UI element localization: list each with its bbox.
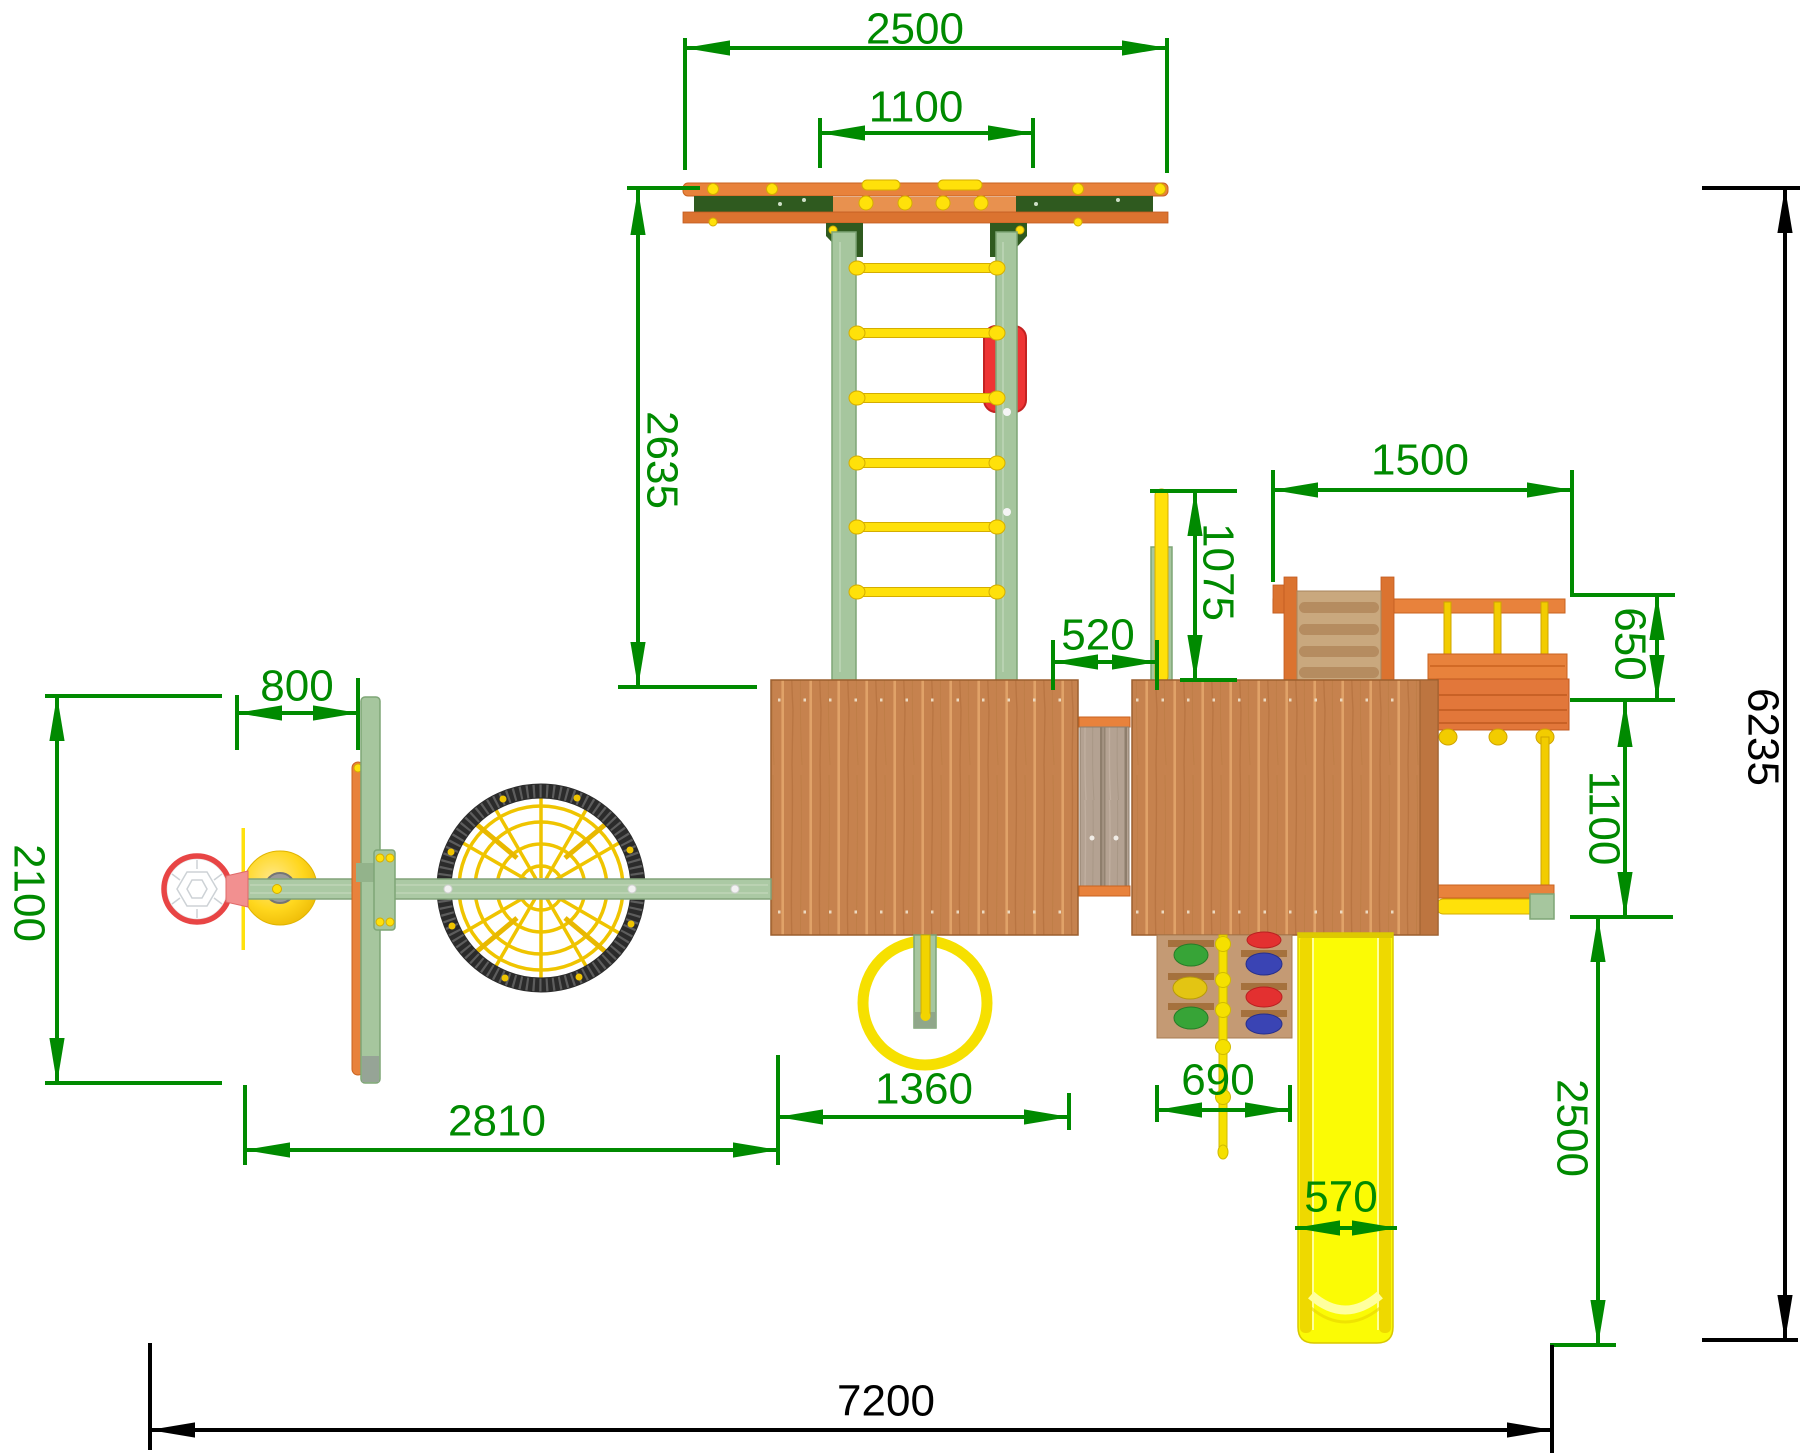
bridge-cap-bottom bbox=[1079, 886, 1130, 896]
top-gym-frame bbox=[683, 180, 1168, 257]
basketball-hoop bbox=[164, 856, 230, 922]
ramp-post-left bbox=[1284, 577, 1297, 683]
screw bbox=[802, 198, 806, 202]
bolt-cap bbox=[386, 918, 394, 926]
dimension-hoop-offset: 800 bbox=[237, 661, 358, 750]
swing-rope bbox=[921, 935, 930, 1015]
bolt-cap bbox=[1074, 218, 1082, 226]
a-frame-leg bbox=[352, 697, 395, 1083]
bolt-cap bbox=[376, 918, 384, 926]
dim-label-ring-bay: 1360 bbox=[875, 1064, 973, 1113]
dimension-side-module-width: 1500 bbox=[1273, 435, 1572, 594]
bolt-cap bbox=[1073, 184, 1084, 195]
dimension-ladder-length: 2635 bbox=[618, 188, 757, 687]
rope-tip bbox=[921, 1011, 931, 1021]
bolt-cap bbox=[708, 184, 719, 195]
screw bbox=[1090, 836, 1095, 841]
rung-knob bbox=[859, 196, 873, 210]
trapeze-bar bbox=[1436, 899, 1539, 914]
climbing-hold-blue bbox=[1246, 953, 1282, 975]
rope-knot bbox=[1489, 729, 1507, 745]
bolt-cap bbox=[709, 218, 717, 226]
dimension-rope-ladder-depth: 650 bbox=[1570, 595, 1675, 700]
climbing-hold-green bbox=[1174, 1007, 1208, 1029]
trapeze-frame bbox=[1436, 737, 1554, 919]
bridge-cap-top bbox=[1079, 717, 1130, 727]
bolt bbox=[628, 885, 636, 893]
trapeze-rope bbox=[1541, 737, 1549, 889]
ramp-roller bbox=[1299, 646, 1379, 657]
rope-ladder bbox=[1428, 602, 1569, 745]
bolt-cap bbox=[767, 184, 778, 195]
slide-rail-right bbox=[1379, 935, 1391, 1333]
dim-label-overall-width: 7200 bbox=[837, 1376, 935, 1425]
dim-label-rope-ladder-depth: 650 bbox=[1606, 607, 1655, 680]
right-platform-post bbox=[1420, 680, 1438, 935]
dim-label-climb-wall-width: 690 bbox=[1181, 1055, 1254, 1104]
slide-rail-left bbox=[1300, 935, 1312, 1333]
swing-beam bbox=[247, 879, 771, 899]
dim-label-hoop-offset: 800 bbox=[260, 661, 333, 710]
left-platform bbox=[771, 680, 1078, 935]
rope-knot bbox=[1439, 729, 1457, 745]
dim-label-frame-width: 2500 bbox=[866, 4, 964, 53]
dim-label-monkey-rung-span: 1100 bbox=[1580, 771, 1629, 866]
right-platform bbox=[1132, 680, 1438, 935]
slide bbox=[1298, 933, 1393, 1343]
playground-top-view-drawing: 2500 1100 2635 1075 520 1500 650 bbox=[0, 0, 1800, 1454]
rung-knob bbox=[936, 196, 950, 210]
bolt bbox=[1003, 508, 1011, 516]
climbing-hold-red bbox=[1247, 932, 1281, 948]
bridge bbox=[1079, 717, 1130, 896]
screw bbox=[1034, 202, 1038, 206]
dim-label-swing-depth: 2100 bbox=[5, 844, 54, 942]
dimension-ring-bay: 1360 bbox=[778, 1055, 1069, 1165]
climbing-hold-blue bbox=[1246, 1014, 1282, 1034]
top-frame-rear-beam bbox=[683, 212, 1168, 223]
trapeze-block bbox=[1530, 894, 1554, 919]
leg-shadow bbox=[362, 1056, 379, 1082]
grip-handle bbox=[862, 180, 900, 190]
top-frame-front-beam bbox=[683, 183, 1168, 196]
bolt-cap bbox=[1155, 184, 1166, 195]
dimension-bridge-length: 520 bbox=[1053, 610, 1157, 690]
rung-knob bbox=[898, 196, 912, 210]
climbing-wall bbox=[1157, 932, 1292, 1159]
dim-label-ladder-length: 2635 bbox=[638, 411, 687, 509]
climbing-hold-yellow bbox=[1173, 977, 1207, 999]
dimension-swing-bay: 2810 bbox=[245, 1085, 778, 1165]
screw bbox=[1114, 836, 1119, 841]
screw bbox=[778, 202, 782, 206]
hoop-bracket bbox=[226, 871, 248, 907]
ramp-roller bbox=[1299, 667, 1379, 678]
top-frame-green-beam-left bbox=[694, 196, 833, 213]
grip-handle bbox=[938, 180, 982, 190]
dimension-overall-depth: 6235 bbox=[1702, 188, 1800, 1340]
ladder-rungs bbox=[849, 261, 1005, 599]
leg-block bbox=[356, 863, 374, 882]
dim-label-swing-bay: 2810 bbox=[448, 1096, 546, 1145]
rung-knob bbox=[974, 196, 988, 210]
ring-swing bbox=[863, 935, 987, 1065]
bolt bbox=[1003, 408, 1011, 416]
climbing-hold-red bbox=[1246, 987, 1282, 1007]
ramp-post-right bbox=[1381, 577, 1394, 683]
dimension-monkey-rung-span: 1100 bbox=[1570, 702, 1673, 917]
ramp-roller bbox=[1299, 624, 1379, 635]
bolt bbox=[444, 885, 452, 893]
bolt-cap bbox=[376, 854, 384, 862]
dimension-ladder-width: 1100 bbox=[820, 82, 1033, 168]
screw bbox=[1116, 198, 1120, 202]
dim-label-slide-run: 2500 bbox=[1548, 1079, 1597, 1177]
dim-label-slide-width: 570 bbox=[1304, 1172, 1377, 1221]
bolt bbox=[731, 885, 739, 893]
dim-label-overall-depth: 6235 bbox=[1739, 688, 1788, 786]
dim-label-pole-height: 1075 bbox=[1194, 523, 1243, 621]
ramp-roller bbox=[1299, 602, 1379, 613]
dim-label-side-module-width: 1500 bbox=[1371, 435, 1469, 484]
swing-unit bbox=[164, 697, 771, 1083]
drawing-canvas: 2500 1100 2635 1075 520 1500 650 bbox=[0, 0, 1800, 1454]
dimension-slide-run: 2500 bbox=[1548, 917, 1616, 1345]
dim-label-ladder-width: 1100 bbox=[869, 82, 964, 131]
climbing-hold-green bbox=[1174, 944, 1208, 966]
dimension-overall-width: 7200 bbox=[150, 1343, 1552, 1453]
bolt-cap bbox=[386, 854, 394, 862]
wall-bars-ladder bbox=[832, 232, 1026, 683]
dim-label-bridge-length: 520 bbox=[1061, 610, 1134, 659]
fireman-pole bbox=[1151, 489, 1172, 683]
bolt-cap bbox=[273, 885, 282, 894]
